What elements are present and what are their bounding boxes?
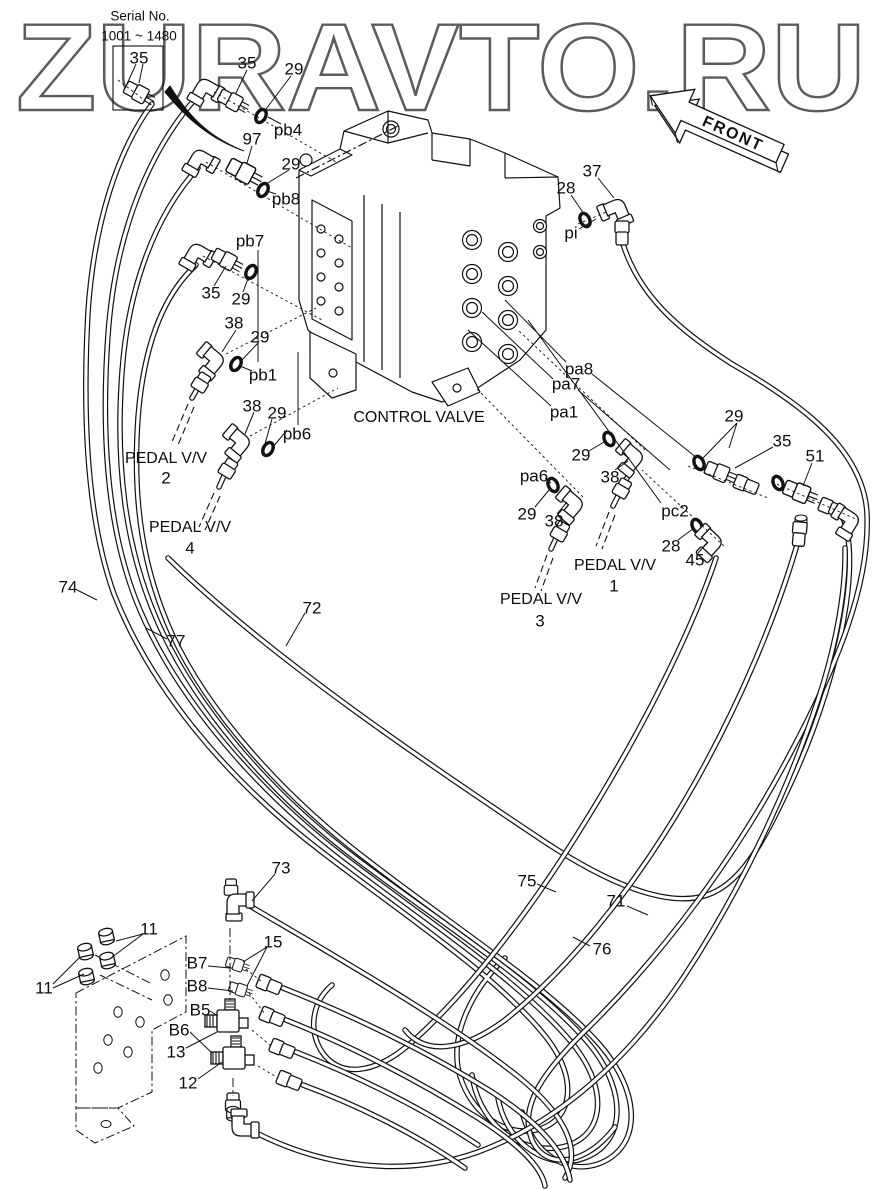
- part-label-12: 12: [179, 1075, 198, 1092]
- part-label-2: 2: [161, 470, 170, 487]
- part-label-76: 76: [593, 941, 612, 958]
- part-label-74: 74: [59, 579, 78, 596]
- part-label-serial-no: Serial No.: [110, 9, 169, 23]
- part-label-pb6: pb6: [283, 426, 311, 443]
- part-label-control-valve: CONTROL VALVE: [353, 410, 484, 426]
- part-label-29: 29: [268, 405, 287, 422]
- part-label-38: 38: [545, 513, 564, 530]
- part-label-97: 97: [243, 131, 262, 148]
- part-label-29: 29: [285, 61, 304, 78]
- part-label-b7: B7: [187, 955, 208, 972]
- part-label-35: 35: [202, 285, 221, 302]
- part-label-45: 45: [686, 552, 705, 569]
- part-label-73: 73: [272, 860, 291, 877]
- part-label-37: 37: [583, 163, 602, 180]
- part-label-29: 29: [518, 506, 537, 523]
- part-label-29: 29: [282, 156, 301, 173]
- part-label-29: 29: [251, 329, 270, 346]
- part-label-pb1: pb1: [249, 367, 277, 384]
- part-label-pedal-v-v: PEDAL V/V: [574, 558, 656, 574]
- part-label-b6: B6: [169, 1022, 190, 1039]
- part-label-pedal-v-v: PEDAL V/V: [500, 592, 582, 608]
- part-label-1001-1480: 1001 ~ 1480: [101, 29, 176, 43]
- part-label-29: 29: [572, 447, 591, 464]
- part-label-pc2: pc2: [661, 503, 688, 520]
- part-label-51: 51: [806, 448, 825, 465]
- part-label-72: 72: [303, 600, 322, 617]
- part-label-pedal-v-v: PEDAL V/V: [125, 451, 207, 467]
- part-label-b8: B8: [187, 978, 208, 995]
- part-label-pb8: pb8: [272, 191, 300, 208]
- part-label-1: 1: [609, 578, 618, 595]
- part-label-11: 11: [140, 921, 158, 938]
- part-label-29: 29: [232, 291, 251, 308]
- part-label-35: 35: [130, 50, 149, 67]
- part-label-pb4: pb4: [274, 122, 302, 139]
- part-label-4: 4: [185, 540, 194, 557]
- part-label-29: 29: [725, 408, 744, 425]
- part-label-pa7: pa7: [552, 376, 580, 393]
- part-label-11: 11: [35, 980, 53, 997]
- part-label-35: 35: [238, 55, 257, 72]
- part-label-pa6: pa6: [520, 468, 548, 485]
- part-label-38: 38: [225, 315, 244, 332]
- part-label-35: 35: [773, 433, 792, 450]
- part-label-71: 71: [607, 893, 626, 910]
- diagram-canvas: ZURAVTO.RU: [0, 0, 883, 1189]
- part-label-b5: B5: [190, 1002, 211, 1019]
- part-label-77: 77: [167, 633, 186, 650]
- part-label-28: 28: [662, 538, 681, 555]
- part-label-75: 75: [518, 873, 537, 890]
- part-label-13: 13: [167, 1044, 186, 1061]
- part-label-pb7: pb7: [236, 233, 264, 250]
- part-label-15: 15: [264, 934, 283, 951]
- part-label-pedal-v-v: PEDAL V/V: [149, 520, 231, 536]
- part-label-3: 3: [535, 613, 544, 630]
- part-label-pi: pi: [564, 225, 577, 242]
- part-label-pa1: pa1: [550, 404, 578, 421]
- part-label-38: 38: [601, 469, 620, 486]
- labels-layer: Serial No.1001 ~ 1480353529pb49729pb8372…: [0, 0, 883, 1189]
- part-label-28: 28: [557, 180, 576, 197]
- part-label-38: 38: [243, 398, 262, 415]
